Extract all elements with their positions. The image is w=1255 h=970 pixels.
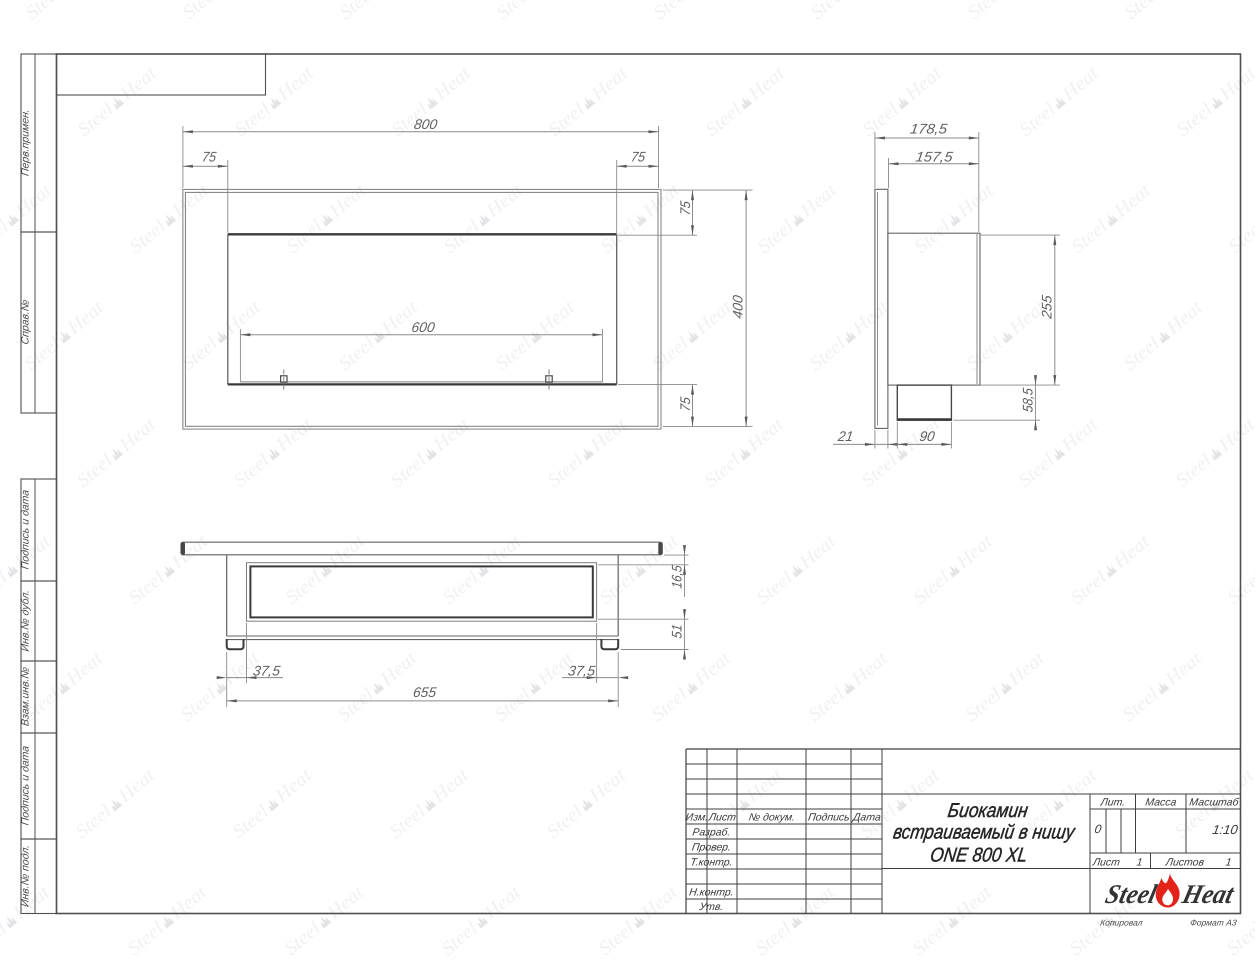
svg-text:51: 51	[668, 623, 684, 639]
svg-text:90: 90	[919, 428, 936, 444]
svg-text:600: 600	[411, 319, 436, 335]
svg-text:37,5: 37,5	[567, 662, 596, 678]
svg-text:157,5: 157,5	[915, 149, 954, 165]
svg-text:Heat: Heat	[1179, 879, 1239, 909]
svg-text:75: 75	[677, 200, 693, 216]
svg-text:Провер.: Провер.	[691, 842, 732, 854]
svg-text:Масса: Масса	[1145, 797, 1178, 809]
svg-text:75: 75	[201, 148, 217, 164]
svg-text:Инв.№ дубл.: Инв.№ дубл.	[20, 589, 32, 652]
svg-text:Листов: Листов	[1164, 857, 1205, 869]
svg-text:Взам.инв.№: Взам.инв.№	[20, 666, 32, 727]
svg-text:400: 400	[730, 294, 746, 319]
svg-text:655: 655	[412, 684, 437, 700]
svg-text:75: 75	[630, 148, 646, 164]
svg-text:Биокамин: Биокамин	[946, 800, 1029, 822]
svg-text:Копировал: Копировал	[1100, 918, 1144, 928]
svg-text:Лист: Лист	[1091, 857, 1121, 869]
svg-text:Масштаб: Масштаб	[1189, 797, 1241, 809]
svg-text:37,5: 37,5	[252, 662, 281, 678]
svg-text:Лист: Лист	[707, 812, 737, 824]
svg-text:800: 800	[413, 116, 438, 132]
svg-text:Т.контр.: Т.контр.	[689, 857, 733, 869]
svg-text:178,5: 178,5	[909, 121, 948, 137]
svg-text:Подпись и дата: Подпись и дата	[20, 489, 32, 570]
svg-text:ONE 800 XL: ONE 800 XL	[929, 845, 1029, 867]
svg-text:Дата: Дата	[851, 812, 881, 824]
svg-text:Подпись и дата: Подпись и дата	[20, 745, 32, 826]
svg-text:Инв.№ подл.: Инв.№ подл.	[20, 844, 32, 908]
svg-text:Утв.: Утв.	[698, 901, 725, 913]
svg-text:Перв.примен.: Перв.примен.	[20, 108, 32, 177]
svg-text:16,5: 16,5	[668, 564, 684, 589]
svg-text:Разраб.: Разраб.	[692, 827, 732, 839]
svg-text:255: 255	[1038, 294, 1054, 320]
svg-text:Лит.: Лит.	[1099, 797, 1126, 809]
svg-text:Справ.№: Справ.№	[20, 299, 32, 345]
svg-text:Формат А3: Формат А3	[1189, 918, 1237, 928]
svg-text:Изм.: Изм.	[685, 812, 709, 824]
svg-text:21: 21	[836, 428, 854, 444]
svg-text:58,5: 58,5	[1019, 387, 1035, 413]
svg-text:75: 75	[677, 396, 693, 412]
svg-text:Steel: Steel	[1103, 879, 1161, 909]
svg-text:№ докум.: № докум.	[748, 812, 796, 824]
svg-text:встраиваемый в нишу: встраиваемый в нишу	[892, 822, 1078, 844]
svg-text:1:10: 1:10	[1211, 822, 1239, 837]
svg-text:Н.контр.: Н.контр.	[688, 887, 734, 899]
svg-text:Подпись: Подпись	[807, 812, 850, 824]
